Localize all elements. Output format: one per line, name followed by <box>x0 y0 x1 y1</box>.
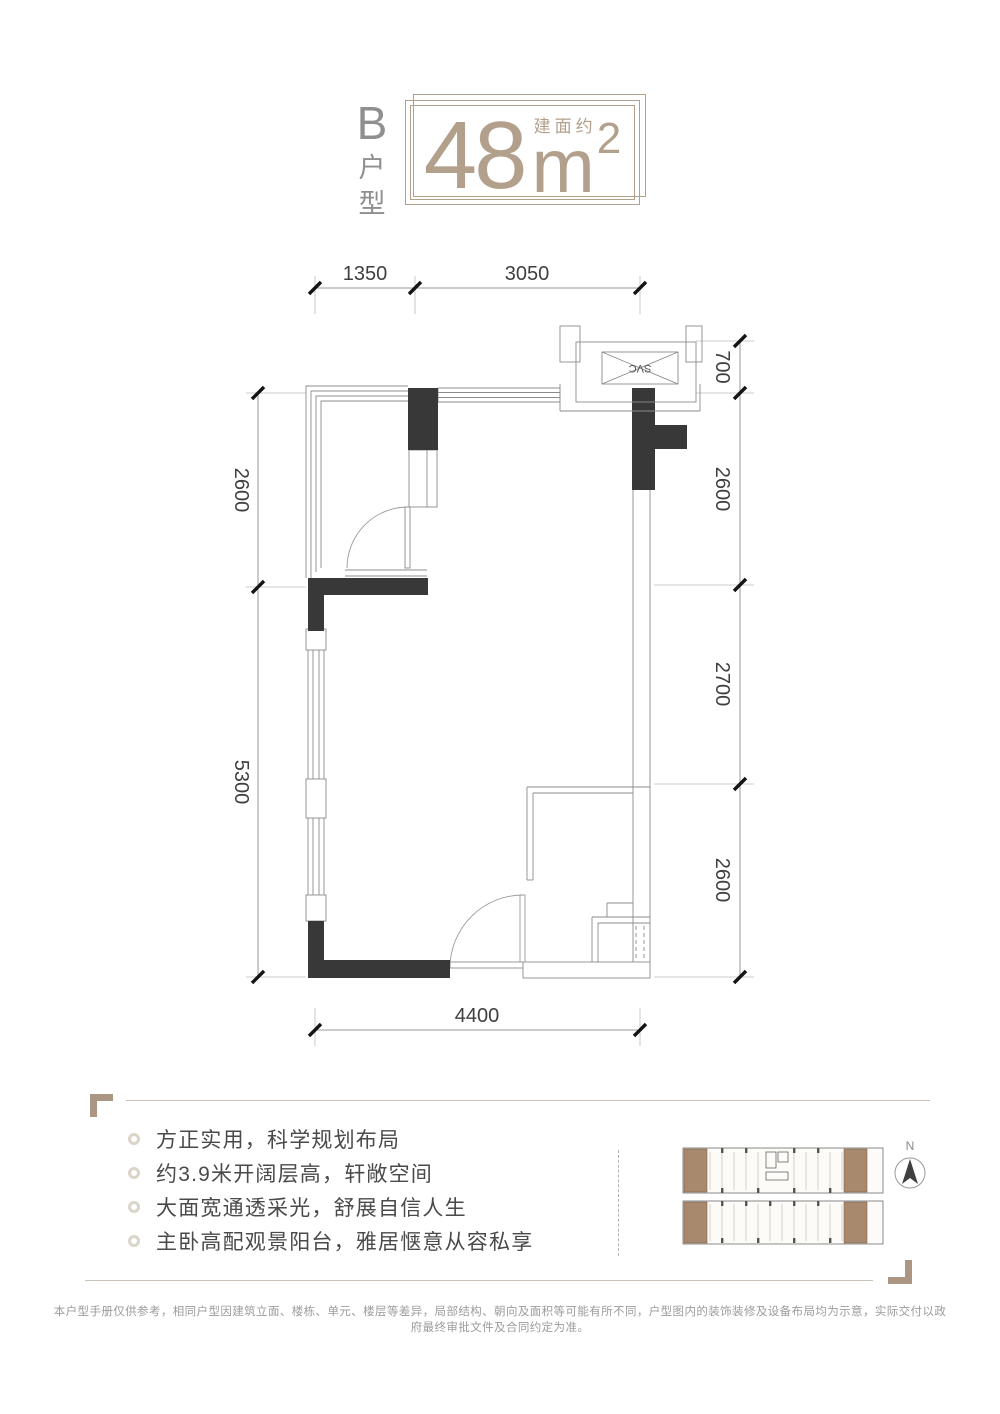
svc-label: SVC <box>629 362 652 374</box>
dim-label: 2600 <box>711 858 733 903</box>
walls-thin <box>306 386 650 978</box>
dim-label: 3050 <box>505 263 550 285</box>
bullet-ring-icon <box>128 1201 140 1213</box>
feature-item: 大面宽通透采光，舒展自信人生 <box>128 1190 533 1224</box>
feature-item: 主卧高配观景阳台，雅居惬意从容私享 <box>128 1224 533 1258</box>
area-unit: m <box>531 140 594 195</box>
dimension-ticks <box>252 282 746 1036</box>
feature-item: 约3.9米开阔层高，轩敞空间 <box>128 1156 533 1190</box>
dim-label: 2600 <box>711 467 733 512</box>
dim-label: 5300 <box>230 760 252 805</box>
dim-label: 2600 <box>230 468 252 513</box>
duct-dashed-lines <box>636 926 644 960</box>
dim-label: 700 <box>711 350 733 383</box>
divider-bottom <box>85 1280 873 1281</box>
corner-ornament-top-left <box>90 1094 113 1117</box>
floor-plan: 1350 3050 4400 2600 5300 700 2600 2700 2… <box>230 250 770 1050</box>
dim-label: 2700 <box>711 662 733 707</box>
dashed-separator <box>618 1150 619 1256</box>
unit-type-char: 户 <box>348 155 396 182</box>
area-exponent: 2 <box>597 117 621 161</box>
dim-label: 4400 <box>455 1005 500 1027</box>
dimension-lines <box>258 288 740 1030</box>
dimension-labels: 1350 3050 4400 2600 5300 700 2600 2700 2… <box>230 263 733 1027</box>
feature-item: 方正实用，科学规划布局 <box>128 1122 533 1156</box>
divider-top <box>126 1100 930 1101</box>
feature-text: 大面宽通透采光，舒展自信人生 <box>156 1192 467 1222</box>
disclaimer-text: 本户型手册仅供参考，相同户型因建筑立面、楼栋、单元、楼层等差异，局部结构、朝向及… <box>50 1303 950 1335</box>
bullet-ring-icon <box>128 1235 140 1247</box>
north-arrow-icon: N <box>884 1136 936 1198</box>
unit-letter: B <box>348 100 396 146</box>
bullet-ring-icon <box>128 1167 140 1179</box>
feature-list: 方正实用，科学规划布局 约3.9米开阔层高，轩敞空间 大面宽通透采光，舒展自信人… <box>128 1122 533 1258</box>
north-label: N <box>906 1139 915 1153</box>
dim-label: 1350 <box>343 263 388 285</box>
feature-text: 约3.9米开阔层高，轩敞空间 <box>156 1158 433 1188</box>
feature-text: 主卧高配观景阳台，雅居惬意从容私享 <box>156 1226 533 1256</box>
walls-solid <box>308 388 687 978</box>
area-badge: 48 建面约 m 2 <box>405 100 640 205</box>
unit-type-label: B 户 型 <box>348 100 396 218</box>
bullet-ring-icon <box>128 1133 140 1145</box>
corner-ornament-bottom-right <box>888 1260 912 1284</box>
area-value: 48 <box>424 118 525 195</box>
unit-type-char: 型 <box>348 191 396 218</box>
compass-needle <box>902 1159 918 1184</box>
feature-text: 方正实用，科学规划布局 <box>156 1124 400 1154</box>
key-plan <box>668 1140 888 1260</box>
key-plan-slabs <box>683 1148 883 1244</box>
brochure-page: B 户 型 48 建面约 m 2 <box>0 0 1000 1414</box>
